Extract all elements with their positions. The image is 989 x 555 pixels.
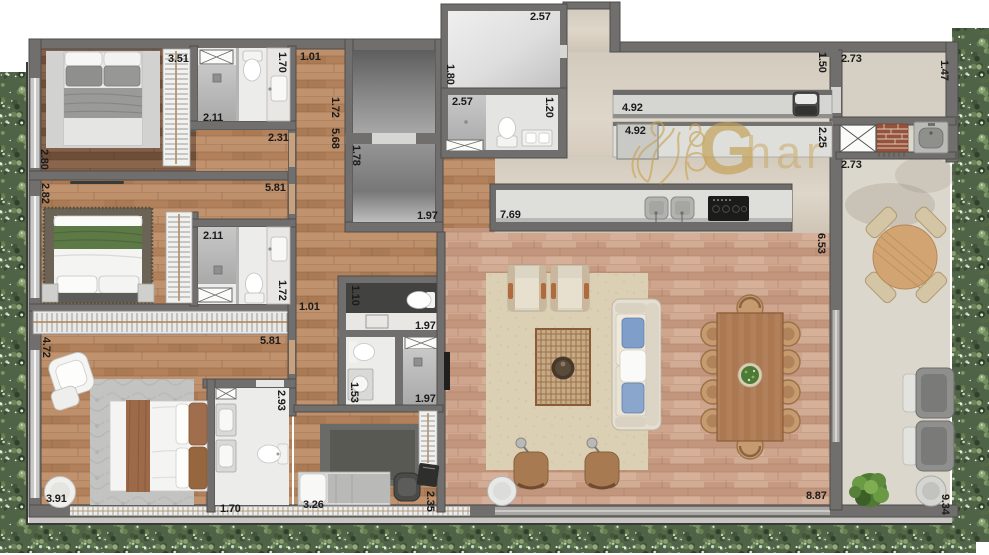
svg-text:1.72: 1.72	[276, 280, 288, 301]
svg-text:2.73: 2.73	[841, 159, 862, 171]
svg-text:5.81: 5.81	[265, 182, 286, 194]
svg-text:2.57: 2.57	[530, 11, 551, 23]
svg-text:2.73: 2.73	[841, 53, 862, 65]
svg-text:1.50: 1.50	[816, 52, 828, 73]
svg-text:2.11: 2.11	[203, 230, 223, 242]
svg-text:1.80: 1.80	[444, 64, 456, 85]
svg-text:1.70: 1.70	[276, 52, 288, 73]
svg-text:2.93: 2.93	[275, 390, 287, 411]
svg-text:8.87: 8.87	[806, 490, 827, 502]
svg-text:5.68: 5.68	[329, 128, 341, 149]
svg-text:1.70: 1.70	[220, 503, 241, 515]
svg-text:1.01: 1.01	[300, 51, 321, 63]
svg-text:1.97: 1.97	[417, 210, 438, 222]
svg-text:2.80: 2.80	[38, 149, 50, 170]
svg-text:1.53: 1.53	[348, 382, 360, 403]
svg-text:3.91: 3.91	[46, 493, 67, 505]
svg-text:1.97: 1.97	[415, 320, 436, 332]
svg-text:4.92: 4.92	[625, 125, 646, 137]
svg-text:1.78: 1.78	[350, 145, 362, 166]
svg-text:2.35: 2.35	[424, 491, 436, 512]
svg-text:2.31: 2.31	[268, 132, 289, 144]
svg-text:har: har	[746, 127, 826, 178]
svg-text:1.47: 1.47	[938, 60, 950, 81]
svg-text:3.26: 3.26	[303, 499, 324, 511]
svg-text:4.92: 4.92	[622, 102, 643, 114]
svg-text:1.10: 1.10	[349, 285, 361, 306]
svg-text:9.34: 9.34	[939, 494, 951, 516]
svg-text:4.72: 4.72	[40, 337, 52, 358]
svg-text:2.25: 2.25	[816, 127, 828, 148]
svg-text:1.97: 1.97	[415, 393, 436, 405]
svg-text:1.72: 1.72	[329, 97, 341, 118]
svg-text:2.82: 2.82	[39, 183, 51, 204]
svg-text:5.81: 5.81	[260, 335, 281, 347]
svg-text:2.57: 2.57	[452, 96, 473, 108]
svg-text:6.53: 6.53	[815, 233, 827, 254]
svg-text:2.11: 2.11	[203, 112, 223, 124]
svg-text:1.20: 1.20	[543, 97, 555, 118]
svg-text:3.51: 3.51	[168, 53, 189, 65]
svg-text:1.01: 1.01	[299, 301, 320, 313]
svg-text:7.69: 7.69	[500, 209, 521, 221]
